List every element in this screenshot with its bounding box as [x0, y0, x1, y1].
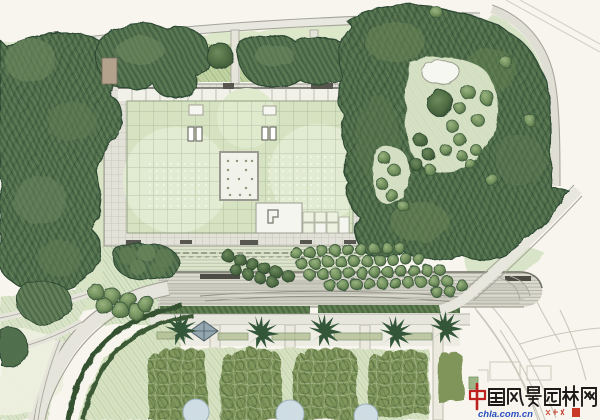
svg-text:chla.com.cn: chla.com.cn	[478, 409, 533, 420]
